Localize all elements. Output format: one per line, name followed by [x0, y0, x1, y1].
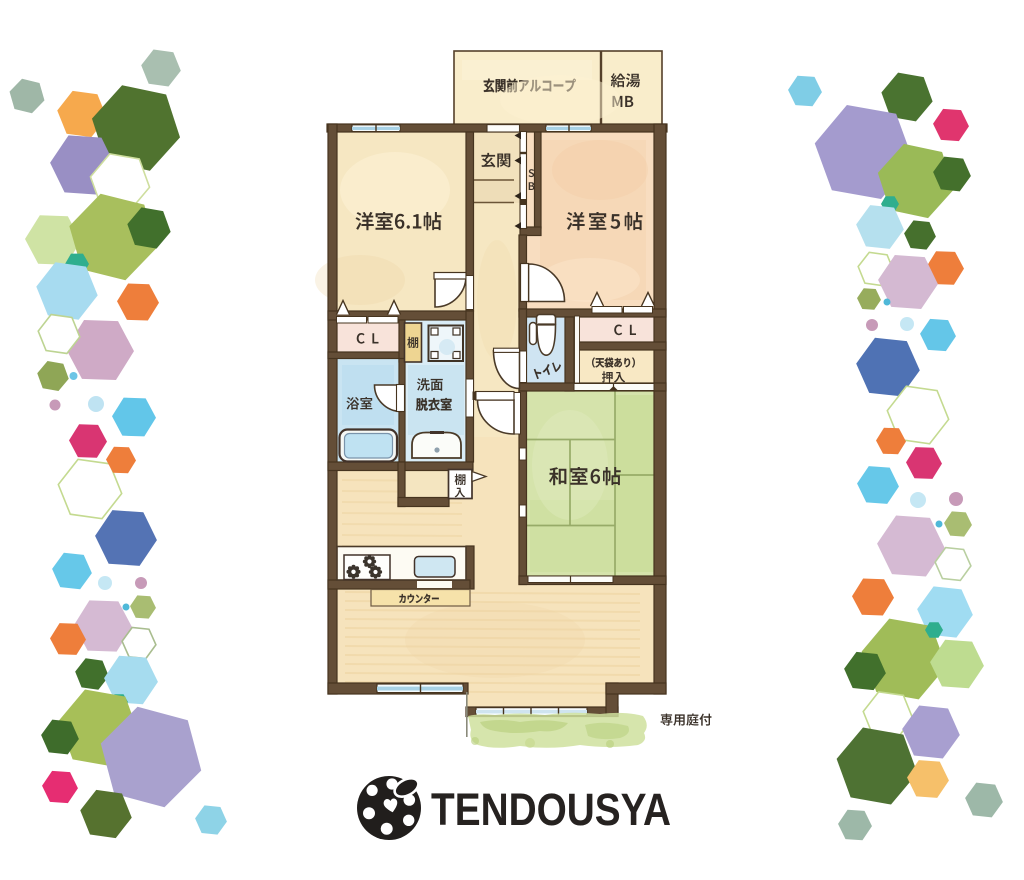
svg-text:TENDOUSYA: TENDOUSYA — [431, 784, 671, 835]
